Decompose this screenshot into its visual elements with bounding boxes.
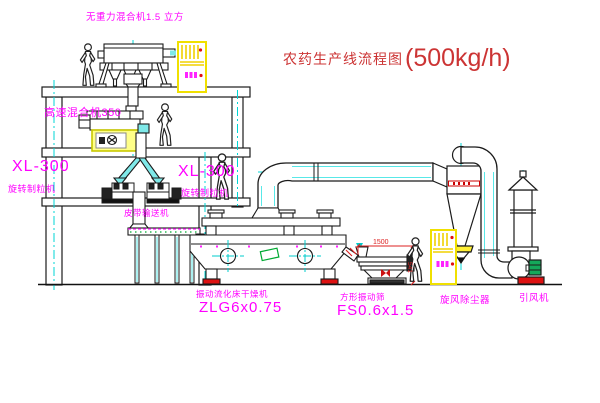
dimension-screen-length: 1500	[373, 239, 389, 246]
fluid-bed-dryer	[190, 210, 363, 284]
label-fan: 引风机	[519, 294, 549, 304]
indicator-light-icon	[450, 236, 453, 239]
label-screen-name: 方形振动筛	[340, 293, 385, 302]
granulator-right	[147, 183, 181, 203]
cabinet-display-icon	[437, 261, 449, 267]
worker-figure	[157, 104, 171, 145]
label-granulator-right-model: XL-300	[178, 164, 236, 180]
control-cabinet-top	[178, 42, 206, 92]
worker-figure	[80, 44, 94, 85]
rain-cap-icon	[509, 177, 537, 190]
cad-drawing-canvas: 农药生产线流程图 (500kg/h) 无重力混合机1.5 立方 高速混合机350…	[0, 0, 600, 403]
title-text: 农药生产线流程图	[283, 49, 403, 69]
building-top-slab	[42, 87, 250, 97]
indicator-light-icon	[199, 48, 202, 51]
cabinet-display-icon	[185, 72, 197, 78]
control-cabinet-bottom	[431, 230, 456, 284]
label-cyclone: 旋风除尘器	[440, 296, 490, 306]
fan-base	[518, 277, 544, 284]
label-gravity-mixer: 无重力混合机1.5 立方	[86, 13, 184, 23]
indicator-light-icon	[451, 262, 454, 265]
label-screen-model: FS0.6x1.5	[337, 303, 414, 318]
title-capacity: (500kg/h)	[405, 44, 511, 73]
label-granulator-left-name: 旋转制粒机	[8, 185, 56, 194]
exhaust-stack	[508, 171, 538, 251]
label-dryer-name: 振动流化床干燥机	[196, 290, 268, 299]
label-granulator-left-model: XL-300	[12, 159, 70, 175]
indicator-light-icon	[199, 74, 202, 77]
dimension-screen-height: 541	[406, 262, 413, 273]
label-granulator-right-name: 旋转制粒机	[181, 189, 229, 198]
diagram-title: 农药生产线流程图 (500kg/h)	[283, 44, 511, 73]
induced-draft-fan	[508, 251, 544, 284]
belt-conveyor	[128, 228, 200, 283]
fan-motor-icon	[529, 260, 541, 275]
y-branch-pipe	[114, 158, 164, 183]
label-belt-conveyor: 皮带输送机	[124, 209, 169, 218]
label-dryer-model: ZLG6x0.75	[199, 300, 282, 315]
label-high-speed-mixer: 高速混合机350	[44, 108, 121, 119]
duct-reducer	[433, 163, 447, 187]
granulator-left	[102, 183, 134, 203]
